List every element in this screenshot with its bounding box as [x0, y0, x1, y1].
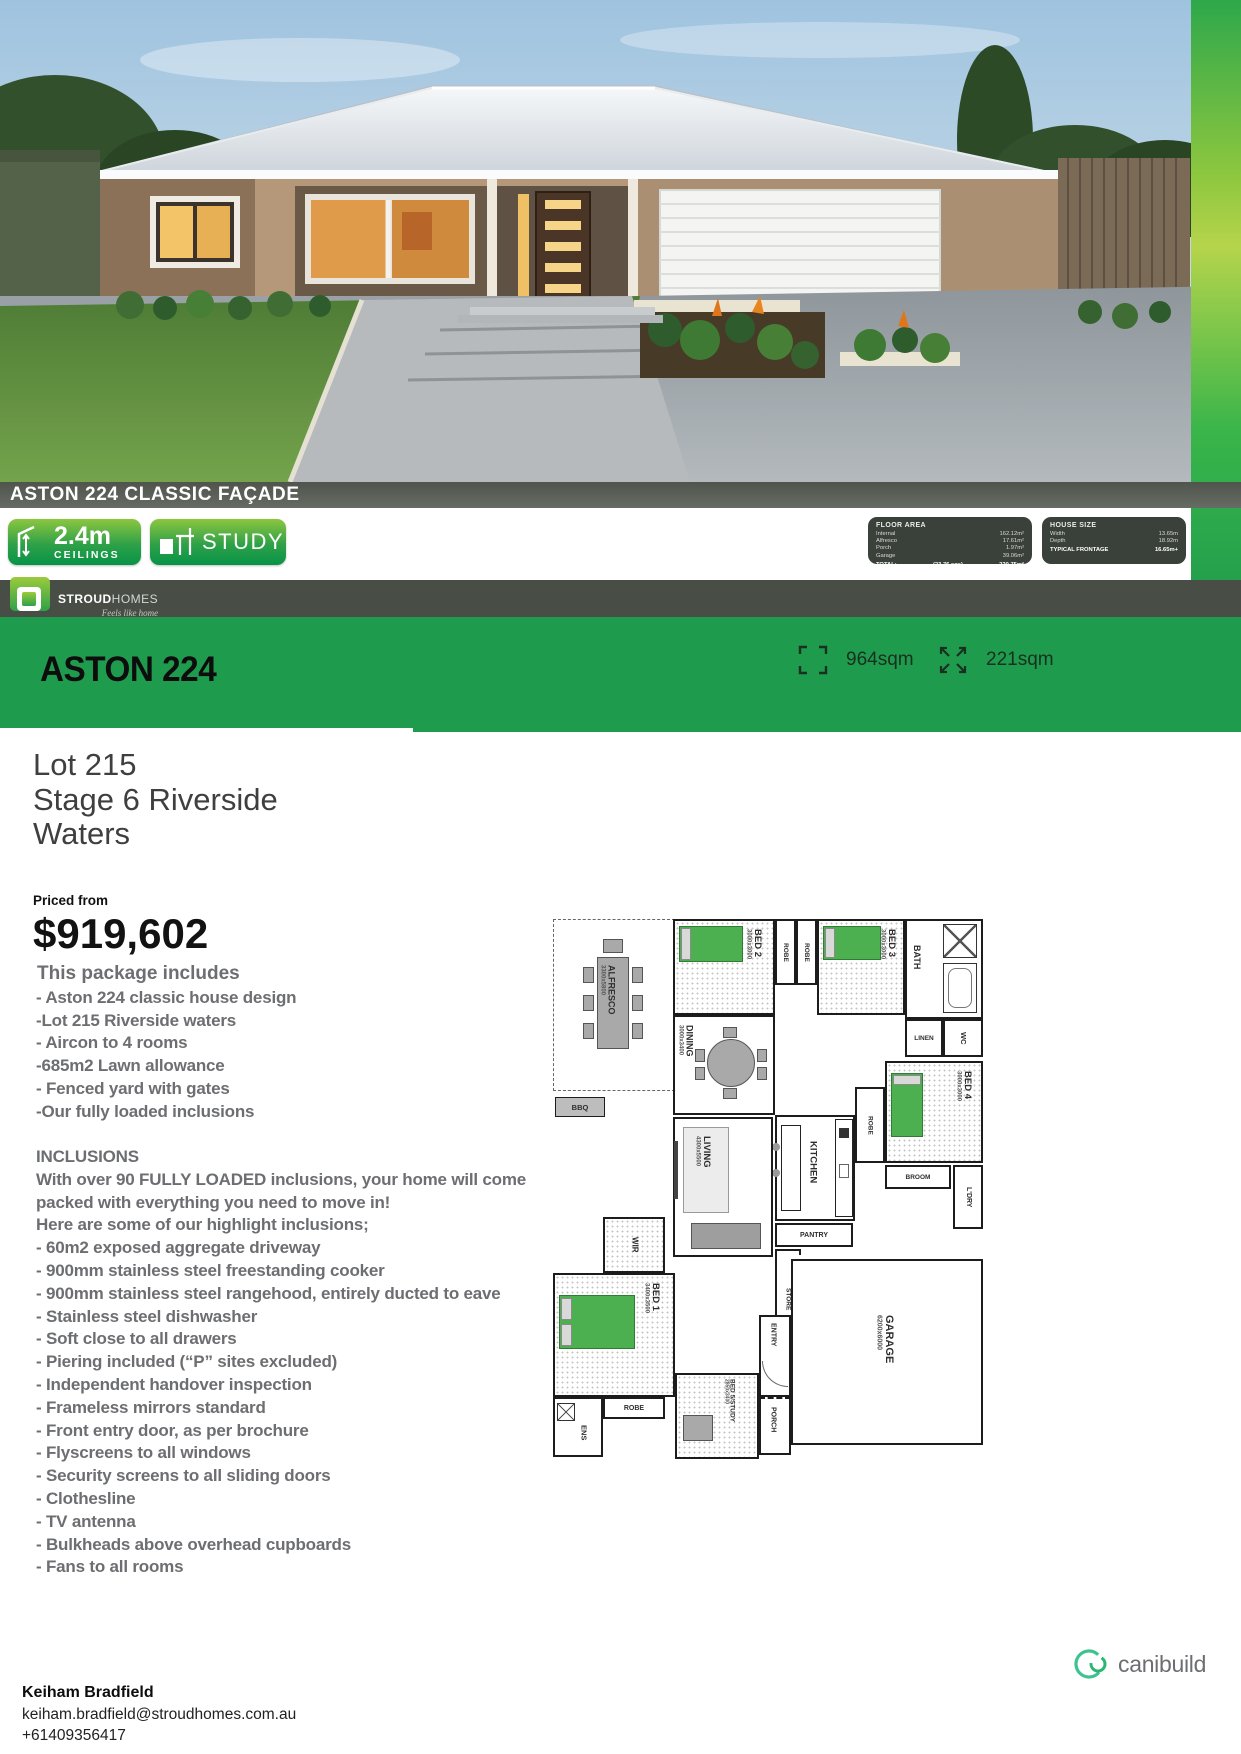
- house-size-row: Depth18.92m: [1050, 538, 1178, 545]
- room-label-living: LIVING 4300x5500: [694, 1136, 711, 1168]
- study-badge-label: STUDY: [202, 529, 284, 555]
- room-wir: WIR: [603, 1217, 665, 1273]
- study-desk-icon: [158, 526, 196, 558]
- stroud-name-bold: STROUD: [58, 592, 112, 606]
- bed4-pillow: [893, 1075, 921, 1085]
- room-label-robe: ROBE: [803, 943, 810, 962]
- room-label-bed5: BED 5/STUDY 2850x3400: [723, 1379, 736, 1422]
- room-label-dining: DINING 3000x3400: [677, 1025, 693, 1057]
- inclusion-item: - Independent handover inspection: [36, 1374, 526, 1397]
- alfresco-chair: [583, 1023, 594, 1039]
- package-item: -685m2 Lawn allowance: [36, 1055, 296, 1078]
- package-item: - Aston 224 classic house design: [36, 987, 296, 1010]
- lot-heading-line: Lot 215: [33, 748, 278, 783]
- alfresco-chair: [632, 1023, 643, 1039]
- floor-area-box: FLOOR AREA Internal162.12m² Alfresco17.6…: [868, 517, 1032, 564]
- inclusions-intro-line: With over 90 FULLY LOADED inclusions, yo…: [36, 1169, 526, 1192]
- kitchen-bench: [835, 1119, 853, 1217]
- dining-chair: [695, 1049, 705, 1062]
- room-label-robe: ROBE: [782, 943, 789, 962]
- room-broom: BROOM: [885, 1165, 951, 1189]
- alfresco-chair: [632, 967, 643, 983]
- inclusion-item: - 900mm stainless steel freestanding coo…: [36, 1260, 526, 1283]
- ceiling-height-icon: [16, 524, 48, 560]
- living-label-box: LIVING 4300x5500: [683, 1127, 729, 1213]
- lot-heading-line: Waters: [33, 817, 278, 852]
- green-edge-strip: [1191, 0, 1241, 617]
- inclusion-item: - Piering included (“P” sites excluded): [36, 1351, 526, 1374]
- grounds: [0, 286, 1241, 482]
- bed2-pillow: [681, 928, 691, 960]
- room-label-bed1: BED 1 3400x3500: [643, 1283, 660, 1313]
- dining-chair: [757, 1067, 767, 1080]
- package-item: -Our fully loaded inclusions: [36, 1101, 296, 1124]
- kitchen-stool: [772, 1143, 780, 1151]
- room-robe: ROBE: [603, 1397, 665, 1419]
- alfresco-chair: [583, 995, 594, 1011]
- ceiling-height-label: CEILINGS: [54, 550, 120, 561]
- dining-table: [707, 1039, 755, 1087]
- bed5-desk: [683, 1415, 713, 1441]
- package-heading: This package includes: [37, 963, 240, 985]
- room-label-robe: ROBE: [866, 1116, 873, 1135]
- priced-from-label: Priced from: [33, 893, 108, 908]
- dining-chair: [757, 1049, 767, 1062]
- room-robe: ROBE: [796, 919, 817, 985]
- house-render-svg: [0, 0, 1241, 482]
- inclusion-item: - Frameless mirrors standard: [36, 1397, 526, 1420]
- ceiling-height-value: 2.4m: [54, 524, 120, 549]
- package-item: - Aircon to 4 rooms: [36, 1032, 296, 1055]
- lot-heading: Lot 215 Stage 6 Riverside Waters: [33, 748, 278, 852]
- room-label-wir: WIR: [630, 1237, 639, 1253]
- room-ldry: L'DRY: [953, 1165, 983, 1229]
- room-label-kitchen: KITCHEN: [807, 1141, 817, 1183]
- dining-chair: [723, 1027, 737, 1038]
- inclusion-item: - Security screens to all sliding doors: [36, 1465, 526, 1488]
- dining-chair: [723, 1088, 737, 1099]
- alfresco-chair: [583, 967, 594, 983]
- room-robe: ROBE: [775, 919, 796, 985]
- room-label-bed2: BED 2 3000x3000: [745, 929, 762, 959]
- typical-frontage-row: TYPICAL FRONTAGE16.65m+: [1050, 547, 1178, 554]
- facade-banner: ASTON 224 CLASSIC FAÇADE: [0, 482, 1241, 508]
- bath-shower: [943, 924, 977, 958]
- stroud-homes-logo: STROUDHOMES Feels like home: [8, 575, 158, 618]
- room-label-ens: ENS: [579, 1425, 587, 1440]
- room-label-entry: ENTRY: [769, 1323, 777, 1346]
- kitchen-island: [781, 1125, 801, 1211]
- floor-plan: ALFRESCO 3300x5800 BBQ BED 2 3000x3000 R…: [545, 915, 985, 1460]
- room-label-broom: BROOM: [906, 1174, 931, 1181]
- floor-area-row: Internal162.12m²: [876, 531, 1024, 538]
- house-area-stat: 221sqm: [938, 645, 1054, 675]
- land-area-icon: [798, 645, 828, 675]
- inclusion-item: - Clothesline: [36, 1488, 526, 1511]
- bath-tub: [943, 963, 977, 1013]
- design-title: ASTON 224: [40, 650, 216, 690]
- alfresco-chair: [632, 995, 643, 1011]
- room-label-bbq: BBQ: [572, 1103, 589, 1112]
- canibuild-logo: canibuild: [1072, 1645, 1206, 1683]
- room-label-bath: BATH: [911, 945, 921, 969]
- floor-area-row: Alfresco17.61m²: [876, 538, 1024, 545]
- house-size-title: HOUSE SIZE: [1050, 522, 1178, 529]
- room-label-robe: ROBE: [624, 1405, 644, 1412]
- room-label-bed3: BED 3 3000x3000: [879, 929, 896, 959]
- room-wc: WC: [943, 1019, 983, 1057]
- living-sofa: [691, 1223, 761, 1249]
- room-label-wc: WC: [959, 1032, 967, 1045]
- room-label-bed4: BED 4 3000x3000: [955, 1071, 972, 1101]
- inclusion-item: - Front entry door, as per brochure: [36, 1420, 526, 1443]
- lot-heading-line: Stage 6 Riverside: [33, 783, 278, 818]
- living-tv: [674, 1141, 678, 1199]
- price-value: $919,602: [33, 910, 208, 958]
- house-area-icon: [938, 645, 968, 675]
- bed3-pillow: [825, 928, 835, 958]
- floor-area-title: FLOOR AREA: [876, 522, 1024, 529]
- ceiling-height-badge: 2.4m CEILINGS: [8, 519, 141, 565]
- land-area-stat: 964sqm: [798, 645, 914, 675]
- study-badge: STUDY: [150, 519, 286, 565]
- floor-area-total-row: TOTAL: (23.76 sqs) 220.75m²: [876, 562, 1024, 569]
- inclusion-item: - TV antenna: [36, 1511, 526, 1534]
- facade-banner-title: ASTON 224 CLASSIC FAÇADE: [0, 484, 300, 506]
- inclusion-item: - Bulkheads above overhead cupboards: [36, 1534, 526, 1557]
- inclusion-item: - Soft close to all drawers: [36, 1328, 526, 1351]
- room-pantry: PANTRY: [775, 1223, 853, 1247]
- agent-name: Keiham Bradfield: [22, 1684, 154, 1702]
- room-robe: ROBE: [855, 1087, 885, 1163]
- room-label-linen: LINEN: [914, 1035, 934, 1042]
- agent-phone: +61409356417: [22, 1727, 126, 1745]
- inclusion-item: - Stainless steel dishwasher: [36, 1306, 526, 1329]
- inclusion-item: - Flyscreens to all windows: [36, 1442, 526, 1465]
- stroud-band: [0, 580, 1241, 617]
- canibuild-wordmark: canibuild: [1118, 1651, 1206, 1678]
- stroud-name-light: HOMES: [112, 592, 159, 606]
- inclusion-item: - Fans to all rooms: [36, 1556, 526, 1579]
- inclusions-block: INCLUSIONS With over 90 FULLY LOADED inc…: [36, 1146, 526, 1579]
- house-size-row: Width13.65m: [1050, 531, 1178, 538]
- house-area-value: 221sqm: [986, 649, 1054, 671]
- inclusion-item: - 900mm stainless steel rangehood, entir…: [36, 1283, 526, 1306]
- inclusion-item: - 60m2 exposed aggregate driveway: [36, 1237, 526, 1260]
- room-label-porch: PORCH: [769, 1407, 777, 1432]
- room-label-garage: GARAGE 6200x6000: [875, 1315, 895, 1363]
- land-area-value: 964sqm: [846, 649, 914, 671]
- floor-area-row: Garage39.06m²: [876, 553, 1024, 560]
- alfresco-chair: [603, 939, 623, 953]
- ens-shower: [557, 1403, 575, 1421]
- inclusions-intro-line: packed with everything you need to move …: [36, 1192, 526, 1215]
- agent-email-link[interactable]: keiham.bradfield@stroudhomes.com.au: [22, 1706, 296, 1724]
- room-bbq: BBQ: [555, 1097, 605, 1117]
- canibuild-mark-icon: [1072, 1645, 1110, 1683]
- room-label-pantry: PANTRY: [800, 1232, 828, 1239]
- dining-chair: [695, 1067, 705, 1080]
- floor-area-row: Porch1.97m²: [876, 545, 1024, 552]
- hero-image: [0, 0, 1241, 482]
- inclusions-intro-line: Here are some of our highlight inclusion…: [36, 1214, 526, 1237]
- kitchen-stool: [772, 1169, 780, 1177]
- bed1-pillow: [561, 1324, 572, 1346]
- room-label-ldry: L'DRY: [964, 1187, 972, 1207]
- room-linen: LINEN: [905, 1019, 943, 1057]
- package-item: - Fenced yard with gates: [36, 1078, 296, 1101]
- package-items: - Aston 224 classic house design -Lot 21…: [36, 987, 296, 1123]
- room-label-alfresco: ALFRESCO 3300x5800: [599, 965, 615, 1015]
- bed1-pillow: [561, 1298, 572, 1320]
- inclusions-heading: INCLUSIONS: [36, 1146, 526, 1169]
- title-band-sliver: [413, 728, 1241, 732]
- stroud-homes-mark-icon: [8, 575, 54, 615]
- house-size-box: HOUSE SIZE Width13.65m Depth18.92m TYPIC…: [1042, 517, 1186, 564]
- package-item: -Lot 215 Riverside waters: [36, 1010, 296, 1033]
